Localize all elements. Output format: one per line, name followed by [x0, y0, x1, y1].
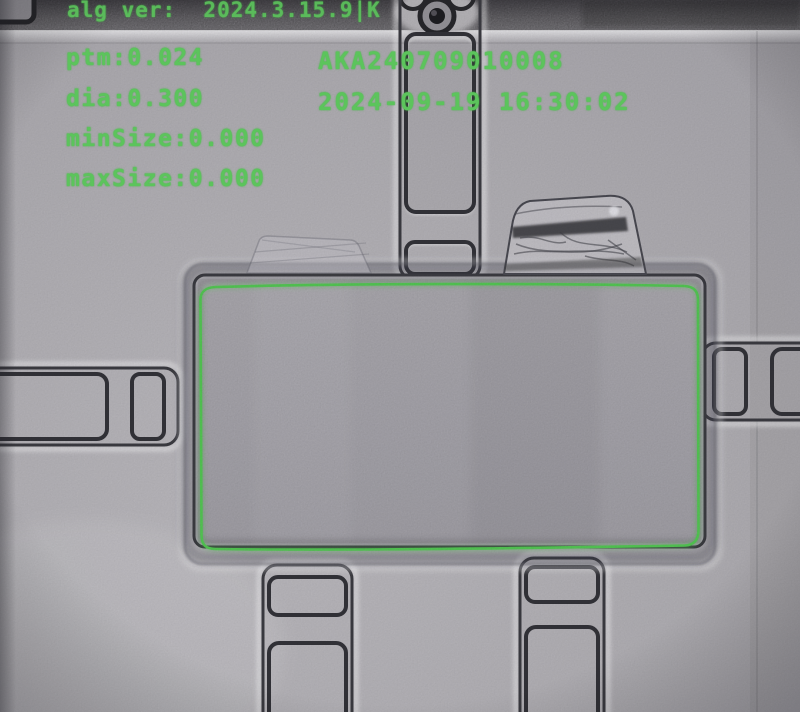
xray-inspection-view: alg ver: 2024.3.15.9|K ptm:0.024 dia:0.3… — [0, 0, 800, 712]
photo-effects — [0, 0, 800, 712]
xray-scene — [0, 0, 800, 712]
